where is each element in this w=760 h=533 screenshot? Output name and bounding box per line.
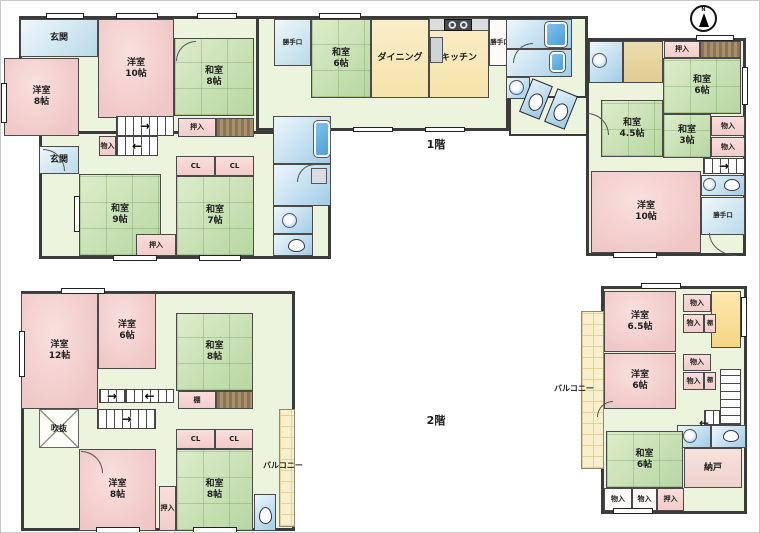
washbasin-icon xyxy=(703,178,716,191)
room-dining: ダイニング xyxy=(371,19,429,98)
window xyxy=(696,35,734,41)
balcony-2f-right-label: バルコニー xyxy=(554,384,606,394)
window xyxy=(1,83,7,123)
room-yoshitsu10-r1f: 洋室10帖 xyxy=(591,171,701,253)
room-washitsu6-2fr: 和室6帖 xyxy=(606,431,683,488)
room-yoshitsu12-2f: 洋室12帖 xyxy=(21,293,98,409)
closet-monoire-2fr-b: 物入 xyxy=(683,314,704,333)
room-yoshitsu8-1f: 洋室8帖 xyxy=(4,58,79,136)
closet-oshiire-1f-a: 押入 xyxy=(178,118,216,137)
closet-oshiire-r1f: 押入 xyxy=(664,41,700,58)
closet-oshiire-2f: 押入 xyxy=(159,486,176,531)
balcony-2f-left-label: バルコニー xyxy=(263,461,315,471)
toilet-icon xyxy=(288,239,305,252)
room-yoshitsu6-2f: 洋室6帖 xyxy=(98,293,156,369)
floor-label-1f: 1階 xyxy=(416,138,456,152)
closet-oshiire-2fr: 押入 xyxy=(657,488,684,511)
washbasin-icon xyxy=(282,213,297,228)
stairs-1f-up: → xyxy=(116,116,174,136)
closet-tana-2fr-a: 棚 xyxy=(704,314,716,333)
window xyxy=(613,508,653,514)
closet-monoire-r1f-a: 物入 xyxy=(711,116,745,136)
window xyxy=(46,13,84,19)
stairs-1f-low: ← xyxy=(116,136,158,156)
closet-oshiire-1f-b: 押入 xyxy=(136,234,176,256)
closet-monoire-2fr-c: 物入 xyxy=(683,354,711,371)
window xyxy=(641,283,681,289)
closet-tan-r1f xyxy=(623,41,663,83)
closet-cl-1f-a: CL xyxy=(176,156,215,176)
room-yoshitsu65-2f: 洋室6.5帖 xyxy=(604,291,676,352)
room-katteguchi-r1f: 勝手口 xyxy=(701,197,745,235)
window xyxy=(742,67,748,105)
washbasin-icon xyxy=(592,53,607,68)
floor-plan: 玄関洋室8帖洋室10帖和室8帖押入→←物入玄関和室9帖押入CLCL和室7帖勝手口… xyxy=(0,0,760,533)
room-washitsu45-r1f: 和室4.5帖 xyxy=(601,100,663,157)
room-washitsu6-1f: 和室6帖 xyxy=(311,19,371,98)
toilet-icon xyxy=(259,507,272,524)
window xyxy=(613,252,657,258)
window xyxy=(61,288,105,294)
room-washitsu8-2f-bottom: 和室8帖 xyxy=(176,449,253,531)
void-fukinuke: 吹抜 xyxy=(39,409,79,448)
closet-monoire-2fr-a: 物入 xyxy=(683,294,711,312)
floor-label-2f: 2階 xyxy=(416,414,456,428)
toilet-icon xyxy=(723,430,739,442)
room-yoshitsu10-1f: 洋室10帖 xyxy=(98,19,174,118)
closet-tana-2f: 棚 xyxy=(178,391,216,409)
stairs-2f-a: → xyxy=(99,389,125,403)
closet-cl-1f-b: CL xyxy=(215,156,254,176)
window xyxy=(74,196,80,232)
washbasin-icon xyxy=(509,80,524,95)
window xyxy=(19,331,25,377)
room-nando-2fr: 納戸 xyxy=(684,448,742,488)
window xyxy=(193,527,237,533)
window xyxy=(425,127,465,132)
storage-brown-2f xyxy=(216,391,253,409)
window xyxy=(741,297,747,337)
room-genkan-upper: 玄関 xyxy=(20,19,98,57)
stairs-2f-c: → xyxy=(97,409,156,429)
stairs-2fr xyxy=(720,369,741,425)
stove-icon xyxy=(444,19,472,31)
window xyxy=(319,13,361,19)
stairs-2fr-arrow: ← xyxy=(699,418,729,428)
room-washitsu6-r1f: 和室6帖 xyxy=(663,58,741,114)
window xyxy=(96,527,140,533)
washbasin-icon xyxy=(683,429,697,443)
room-washitsu8-2f-top: 和室8帖 xyxy=(176,313,253,391)
toilet-icon xyxy=(724,179,740,191)
storage-brown-r1f xyxy=(700,41,741,58)
closet-monoire-2fr-d: 物入 xyxy=(683,372,704,390)
closet-cl-2f-b: CL xyxy=(215,429,253,449)
closet-tana-2fr-b: 棚 xyxy=(704,372,716,390)
window xyxy=(116,13,158,19)
closet-cl-2f-a: CL xyxy=(176,429,215,449)
stairs-r1f: → xyxy=(703,158,745,174)
compass-icon: N xyxy=(690,5,717,32)
bathtub-icon xyxy=(545,22,567,47)
window xyxy=(199,255,241,261)
closet-monoire-1f: 物入 xyxy=(99,136,116,156)
closet-monoire-r1f-b: 物入 xyxy=(711,137,745,157)
room-washitsu7-1f: 和室7帖 xyxy=(176,176,254,256)
room-katteguchi-1: 勝手口 xyxy=(274,19,311,66)
room-washitsu3-r1f: 和室3帖 xyxy=(663,114,711,158)
window xyxy=(113,255,157,261)
kitchen-sink xyxy=(430,37,443,63)
window xyxy=(197,13,237,19)
bathtub-icon xyxy=(550,52,565,72)
stairs-2f-b: ← xyxy=(125,389,174,403)
room-yoshitsu6-2fr: 洋室6帖 xyxy=(604,353,676,409)
window xyxy=(353,127,393,132)
bathtub-icon xyxy=(314,121,330,157)
storage-brown-1f xyxy=(216,118,254,137)
